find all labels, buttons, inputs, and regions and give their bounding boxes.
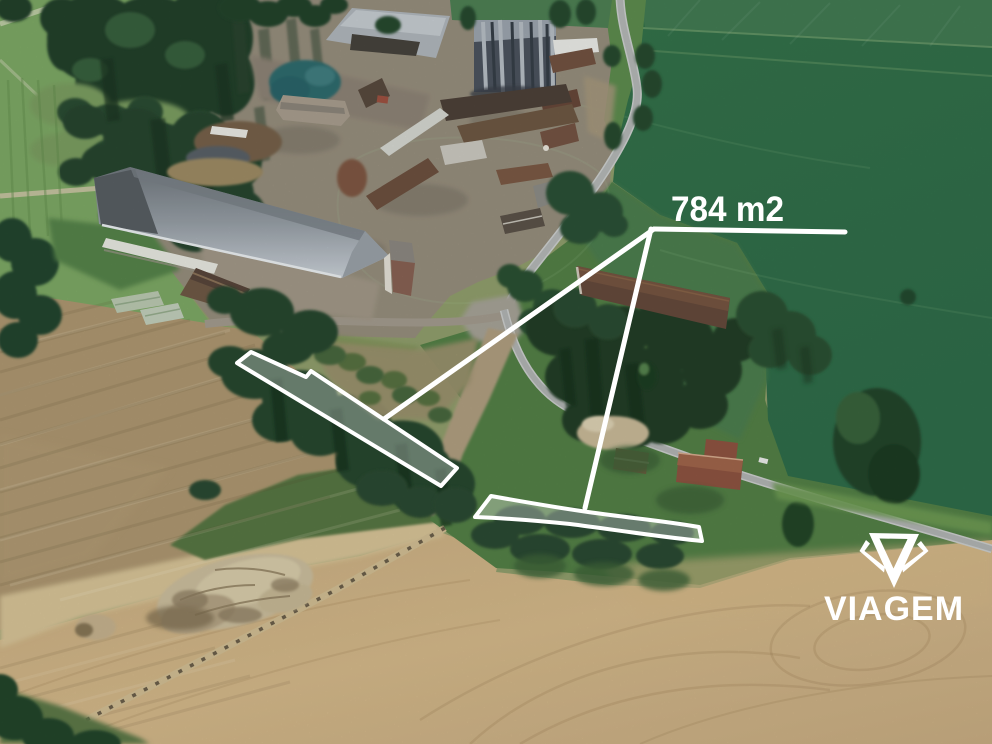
svg-text:VIAGEM: VIAGEM (824, 590, 964, 628)
svg-text:784 m2: 784 m2 (671, 189, 784, 229)
